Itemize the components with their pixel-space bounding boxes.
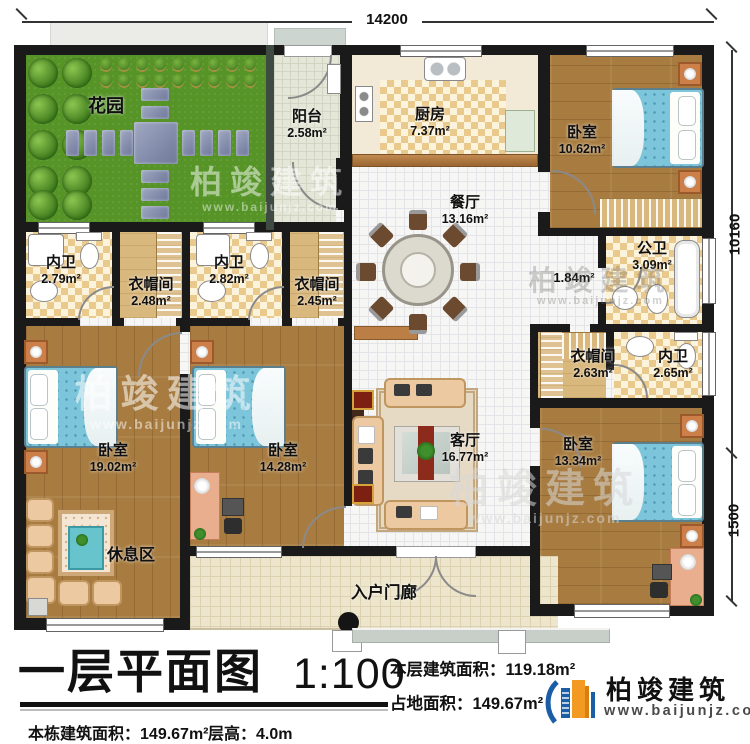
room-label: 入户门廊 (344, 584, 424, 604)
monitor-icon (222, 498, 244, 516)
wall (182, 222, 190, 326)
stepping-stone (134, 122, 178, 164)
wall (344, 210, 352, 506)
tree-icon (28, 58, 58, 88)
wall (350, 546, 396, 556)
stepping-stone (84, 130, 97, 156)
shrub-icon (226, 74, 238, 86)
flower-icon (76, 534, 88, 546)
title-underline-shadow (20, 709, 388, 711)
shrub-icon (118, 74, 130, 86)
wall (336, 158, 352, 210)
side-table (28, 598, 48, 616)
pillow (30, 374, 48, 406)
tree-icon (62, 58, 92, 88)
fridge-icon (505, 110, 535, 152)
quilt (252, 368, 284, 446)
title-underline (20, 702, 388, 707)
porch-step-block (498, 630, 526, 654)
dimension-label: 10160 (727, 203, 744, 267)
shrub-icon (172, 58, 184, 70)
wall (530, 398, 714, 408)
room-label: 衣帽间2.63m² (558, 348, 628, 381)
wall (474, 546, 530, 556)
stepping-stone (218, 130, 231, 156)
desk-lamp (680, 554, 696, 570)
tree-icon (28, 190, 58, 220)
shrub-icon (226, 58, 238, 70)
night-stand (678, 62, 702, 86)
shrub-icon (190, 58, 202, 70)
sofa-cushion (358, 426, 375, 444)
room-label: 卧室14.28m² (240, 442, 326, 475)
stepping-stone (141, 170, 169, 183)
pillow (198, 374, 216, 406)
wardrobe-rail (600, 198, 702, 227)
room-label: 卧室10.62m² (538, 124, 626, 157)
kitchen-counter (352, 154, 538, 167)
window (574, 604, 670, 618)
sofa (92, 580, 122, 606)
sofa-cushion (358, 448, 373, 464)
wall (538, 228, 714, 236)
stepping-stone (102, 130, 115, 156)
stepping-stone (66, 130, 79, 156)
stepping-stone (200, 130, 213, 156)
plant-icon (690, 594, 702, 606)
stepping-stone (236, 130, 249, 156)
exterior-terrace (50, 22, 268, 47)
night-stand (680, 524, 704, 548)
sink-icon (612, 286, 638, 310)
wall (590, 324, 606, 332)
shrub-icon (118, 58, 130, 70)
wall (598, 302, 606, 324)
lamp-icon (684, 176, 696, 188)
total-area-text: 本栋建筑面积：149.67m² (28, 720, 209, 744)
wall (180, 374, 190, 630)
shrub-icon (172, 74, 184, 86)
pillow (30, 408, 48, 440)
pillow (678, 96, 696, 126)
room-label: 内卫2.79m² (32, 254, 90, 287)
company-website: www.baijunjz.com (604, 703, 750, 719)
room-label: 卧室13.34m² (534, 436, 622, 469)
lamp-icon (684, 68, 696, 80)
shrub-icon (208, 74, 220, 86)
wall (598, 324, 714, 332)
toilet-tank-icon (674, 332, 698, 341)
shrub-icon (100, 58, 112, 70)
night-stand (24, 450, 48, 474)
sofa (26, 524, 54, 548)
water-heater-icon (327, 64, 341, 94)
room-label: 内卫2.82m² (200, 254, 258, 287)
sofa-cushion (396, 506, 412, 518)
sofa-cushion (420, 506, 438, 520)
shrub-icon (244, 58, 256, 70)
porch-steps (352, 628, 610, 643)
window (400, 45, 482, 57)
window (702, 332, 716, 396)
tree-icon (28, 94, 58, 124)
room-label: 花园 (82, 96, 130, 118)
side-table (352, 390, 374, 410)
wall (530, 408, 540, 428)
stove-icon (355, 86, 373, 122)
lamp-icon (196, 346, 208, 358)
stepping-stone (141, 106, 169, 119)
room-label: 休息区 (100, 546, 162, 565)
shrub-icon (100, 74, 112, 86)
company-name: 柏竣建筑 (606, 670, 730, 707)
room-label: 卧室19.02m² (70, 442, 156, 475)
tree-icon (28, 130, 58, 160)
tea-table (68, 526, 104, 570)
desk-chair (650, 582, 668, 598)
pillow (198, 408, 216, 440)
room-label: 衣帽间2.48m² (114, 276, 188, 309)
room-label: 1.84m² (548, 270, 600, 286)
wall (598, 236, 606, 268)
pillow (678, 450, 696, 482)
night-stand (680, 414, 704, 438)
wall (530, 466, 540, 604)
toilet-icon (646, 284, 668, 314)
night-stand (190, 340, 214, 364)
shrub-icon (154, 58, 166, 70)
sofa-cushion (416, 384, 432, 396)
plan-scale: 1:100 (293, 650, 406, 698)
sofa-cushion (394, 384, 410, 396)
dimension-label: 1500 (726, 495, 743, 547)
stepping-stone (141, 206, 169, 219)
pillow (678, 484, 696, 516)
room-label: 餐厅13.16m² (420, 194, 510, 227)
desk-lamp (194, 478, 210, 494)
floor-plan: 花园 阳台2.58m² 厨房7.37m² 卧室10.62m² 餐厅13.16m²… (0, 0, 750, 744)
window (586, 45, 674, 57)
dining-table-center (400, 252, 436, 288)
window (46, 618, 164, 632)
stepping-stone (182, 130, 195, 156)
stepping-stone (141, 188, 169, 201)
night-stand (24, 340, 48, 364)
floor-height-text: 层高：4.0m (208, 720, 292, 744)
quilt (84, 368, 116, 446)
company-logo-icon (545, 672, 599, 726)
shrub-icon (136, 74, 148, 86)
wall (14, 318, 80, 326)
night-stand (678, 170, 702, 194)
stepping-stone (120, 130, 133, 156)
window (196, 546, 282, 558)
tree-icon (62, 190, 92, 220)
plan-title: 一层平面图1:100 (18, 644, 406, 702)
shrub-icon (208, 58, 220, 70)
room-label: 客厅16.77m² (428, 432, 502, 465)
shrub-icon (190, 74, 202, 86)
room-label: 公卫3.09m² (622, 240, 682, 273)
pillow (678, 130, 696, 160)
shrub-icon (244, 74, 256, 86)
lamp-icon (686, 420, 698, 432)
room-label: 厨房7.37m² (386, 106, 474, 139)
room-label: 衣帽间2.45m² (280, 276, 354, 309)
sofa (26, 498, 54, 522)
dining-chair (460, 263, 480, 281)
desk-chair (224, 518, 242, 534)
dimension-label: 14200 (352, 11, 422, 28)
room-label: 内卫2.65m² (642, 348, 704, 381)
window (702, 238, 716, 304)
toilet-tank-icon (76, 232, 102, 241)
shrub-icon (136, 58, 148, 70)
sofa (58, 580, 90, 606)
plant-icon (194, 528, 206, 540)
lamp-icon (30, 456, 42, 468)
dimension-tick (705, 8, 717, 20)
kitchen-sink-icon (424, 57, 466, 81)
wall (14, 45, 26, 630)
sofa (26, 550, 54, 574)
wall (538, 324, 570, 332)
side-table (352, 484, 374, 504)
lamp-icon (30, 346, 42, 358)
shrub-icon (154, 74, 166, 86)
monitor-icon (652, 564, 672, 580)
wall (530, 324, 538, 398)
room-label: 阳台2.58m² (272, 108, 342, 141)
stepping-stone (141, 88, 169, 101)
land-area-text: 占地面积：149.67m² (390, 690, 543, 714)
wall (340, 45, 352, 160)
lamp-icon (686, 530, 698, 542)
dining-chair (356, 263, 376, 281)
dining-chair (409, 314, 427, 334)
toilet-tank-icon (246, 232, 272, 241)
dimension-tick (15, 8, 27, 20)
